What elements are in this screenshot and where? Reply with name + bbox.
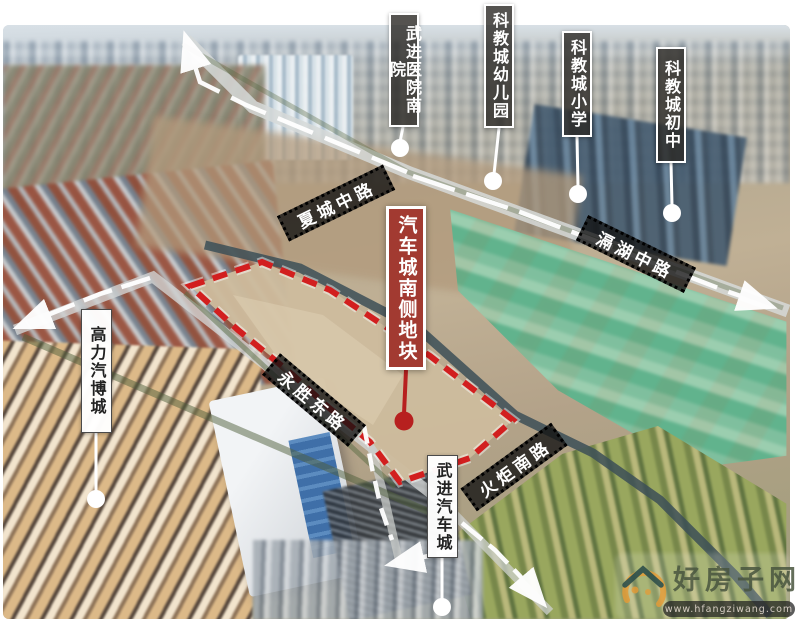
watermark-house-icon	[615, 556, 669, 610]
watermark: 好房子网 www.hfangziwang.com	[615, 550, 795, 622]
callout-gaoli-auto-expo: 高力汽博城	[81, 309, 112, 433]
callout-primary-school: 科教城小学	[562, 31, 592, 137]
watermark-url: www.hfangziwang.com	[663, 601, 795, 617]
watermark-brand: 好房子网	[673, 558, 795, 597]
callout-wujin-auto-city: 武进汽车城	[427, 455, 458, 558]
infographic-map: 武进医院南院 科教城幼儿园 科教城小学 科教城初中 高力汽博城 武进汽车城 汽车…	[0, 0, 800, 624]
callout-kindergarten: 科教城幼儿园	[484, 4, 514, 128]
site-label: 汽车城南侧地块	[386, 206, 426, 370]
road-southeast	[455, 515, 550, 612]
callout-junior-high: 科教城初中	[656, 47, 686, 163]
callout-hospital: 武进医院南院	[389, 13, 419, 127]
